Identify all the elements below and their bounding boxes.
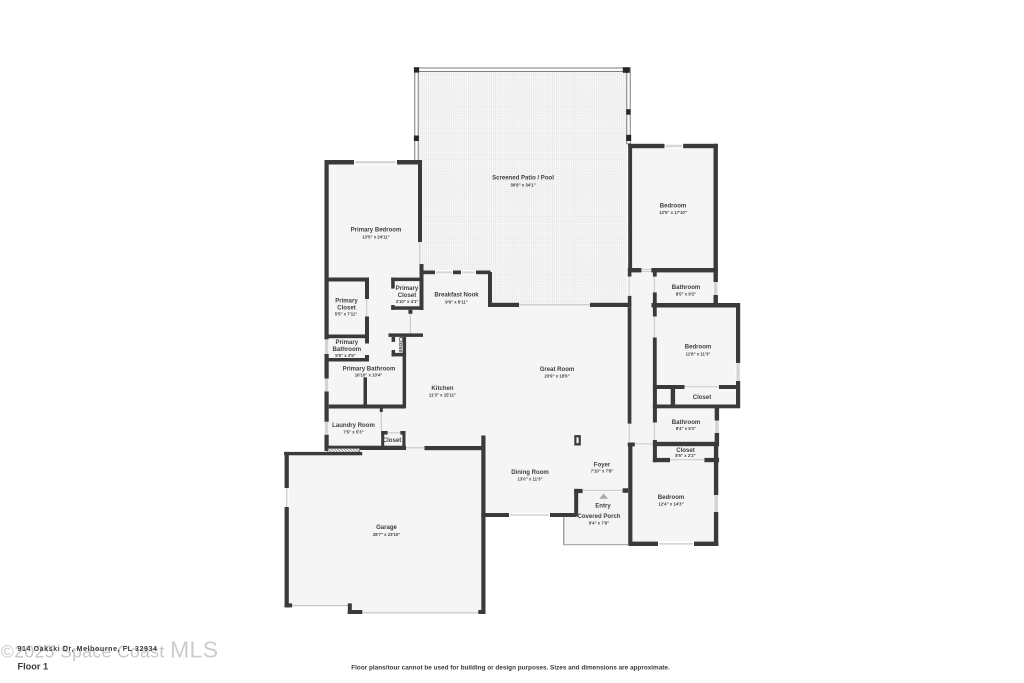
svg-text:10'10" x 10'4": 10'10" x 10'4": [355, 373, 383, 378]
svg-text:Closet: Closet: [693, 395, 711, 401]
svg-text:Covered Porch: Covered Porch: [577, 514, 620, 520]
svg-text:Dining Room: Dining Room: [511, 470, 549, 476]
svg-text:12'4" x 14'3": 12'4" x 14'3": [658, 502, 683, 507]
svg-text:9'4" x 7'9": 9'4" x 7'9": [589, 521, 609, 526]
svg-text:Screened Patio / Pool: Screened Patio / Pool: [492, 176, 554, 182]
svg-text:Primary Bathroom: Primary Bathroom: [343, 366, 396, 372]
svg-text:Primary Bedroom: Primary Bedroom: [351, 228, 402, 234]
svg-text:Bedroom: Bedroom: [685, 345, 712, 351]
svg-text:Floor plans/tour cannot be use: Floor plans/tour cannot be used for buil…: [351, 664, 670, 671]
svg-text:20'9" x 18'6": 20'9" x 18'6": [544, 374, 569, 379]
svg-text:11'3" x 15'11": 11'3" x 15'11": [429, 393, 456, 398]
svg-text:Bedroom: Bedroom: [660, 204, 687, 210]
svg-text:8'5" x 9'2": 8'5" x 9'2": [676, 292, 696, 297]
svg-text:Bedroom: Bedroom: [658, 495, 685, 501]
svg-text:Great Room: Great Room: [540, 367, 575, 373]
svg-text:Breakfast Nook: Breakfast Nook: [434, 293, 479, 299]
svg-text:Kitchen: Kitchen: [431, 386, 453, 392]
svg-text:9'6" x 8'11": 9'6" x 8'11": [445, 300, 468, 305]
svg-text:914 Oakski Dr, Melbourne, FL 3: 914 Oakski Dr, Melbourne, FL 32934: [18, 646, 158, 653]
svg-text:Closet: Closet: [397, 337, 403, 355]
svg-text:5'5" x 3'5": 5'5" x 3'5": [335, 353, 355, 358]
svg-text:13'0" x 11'3": 13'0" x 11'3": [518, 477, 543, 482]
svg-text:13'5" x 24'11": 13'5" x 24'11": [362, 235, 389, 240]
svg-text:Floor 1: Floor 1: [18, 661, 49, 671]
svg-text:Bathroom: Bathroom: [672, 285, 701, 291]
svg-text:8'4" x 5'1": 8'4" x 5'1": [676, 426, 696, 431]
svg-text:7'10" x 7'8": 7'10" x 7'8": [591, 469, 614, 474]
svg-text:Primary: Primary: [335, 299, 358, 305]
svg-text:Laundry Room: Laundry Room: [332, 423, 375, 429]
svg-text:5'5" x 7'11": 5'5" x 7'11": [335, 312, 358, 317]
svg-text:Garage: Garage: [376, 525, 397, 531]
svg-text:Primary: Primary: [396, 286, 419, 292]
svg-text:7'5" x 5'3": 7'5" x 5'3": [343, 430, 363, 435]
svg-text:Closet: Closet: [383, 438, 401, 444]
svg-text:3'10" x 4'1": 3'10" x 4'1": [396, 299, 419, 304]
svg-text:Primary: Primary: [336, 340, 359, 346]
svg-text:12'5" x 17'10": 12'5" x 17'10": [659, 210, 687, 215]
svg-text:Entry: Entry: [595, 504, 611, 510]
svg-text:8'5" x 2'2": 8'5" x 2'2": [675, 453, 695, 458]
svg-text:11'8" x 11'3": 11'8" x 11'3": [686, 352, 711, 357]
svg-text:Bathroom: Bathroom: [672, 420, 701, 426]
svg-text:30'8" x 34'1": 30'8" x 34'1": [510, 183, 535, 188]
svg-text:Bathroom: Bathroom: [333, 347, 362, 353]
svg-text:28'7" x 23'10": 28'7" x 23'10": [373, 532, 401, 537]
